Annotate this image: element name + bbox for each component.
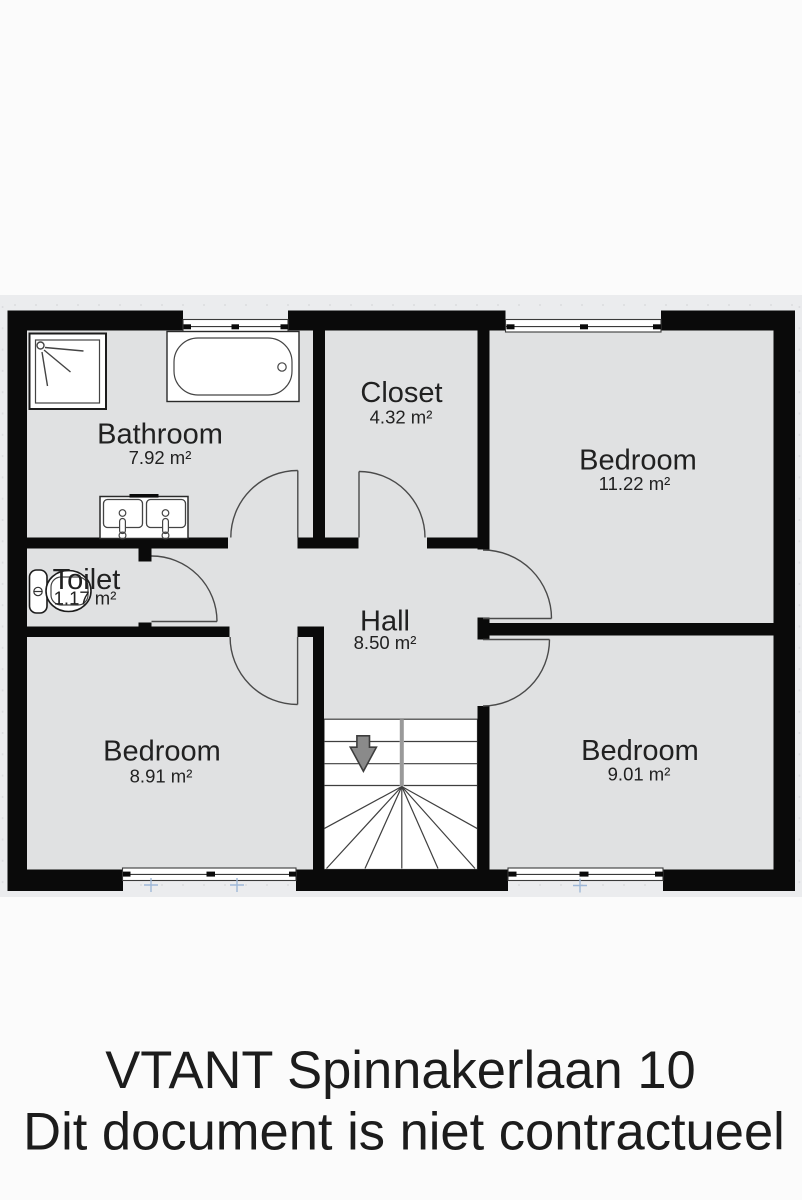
svg-text:Closet: Closet (360, 377, 442, 409)
svg-text:1.17 m²: 1.17 m² (54, 588, 117, 609)
svg-text:11.22 m²: 11.22 m² (599, 473, 671, 494)
svg-text:Bedroom: Bedroom (579, 445, 697, 477)
svg-text:8.50 m²: 8.50 m² (354, 632, 417, 653)
svg-text:8.91 m²: 8.91 m² (130, 766, 193, 787)
svg-text:9.01 m²: 9.01 m² (608, 764, 671, 785)
svg-text:Bedroom: Bedroom (581, 735, 699, 767)
svg-text:VTANT Spinnakerlaan 10: VTANT Spinnakerlaan 10 (105, 1041, 695, 1100)
svg-text:Bedroom: Bedroom (103, 736, 221, 768)
svg-text:Bathroom: Bathroom (97, 419, 223, 451)
svg-text:4.32 m²: 4.32 m² (370, 407, 433, 428)
svg-text:Dit document is niet contractu: Dit document is niet contractueel (23, 1103, 785, 1162)
svg-text:7.92 m²: 7.92 m² (129, 447, 192, 468)
